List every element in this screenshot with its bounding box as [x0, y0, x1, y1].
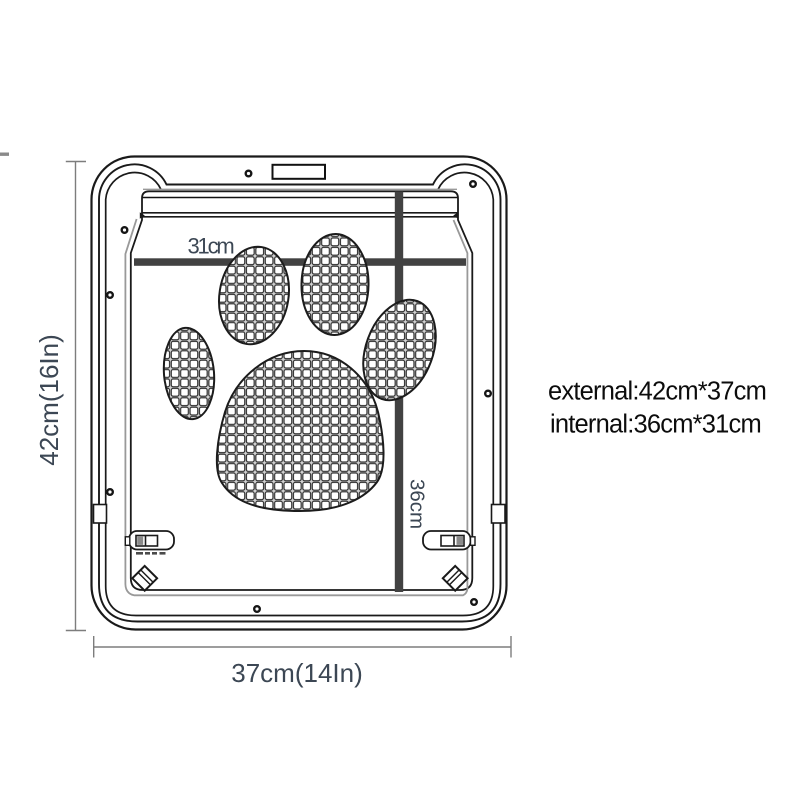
svg-text:internal:36cm*31cm: internal:36cm*31cm: [550, 411, 761, 439]
svg-text:36cm: 36cm: [406, 479, 429, 529]
svg-text:31cm: 31cm: [188, 234, 234, 259]
svg-text:37cm(14In): 37cm(14In): [231, 658, 363, 688]
svg-text:external:42cm*37cm: external:42cm*37cm: [548, 378, 766, 406]
svg-text:42cm(16In): 42cm(16In): [34, 334, 64, 466]
